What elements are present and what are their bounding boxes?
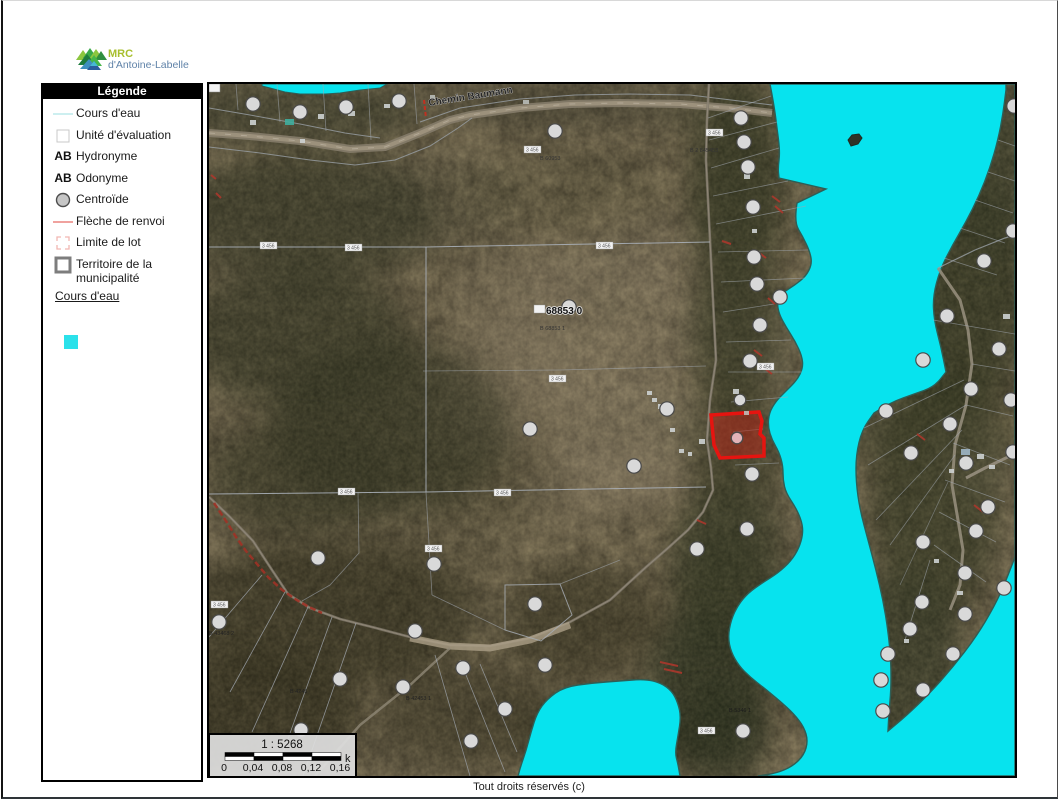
- svg-text:3 456: 3 456: [526, 148, 539, 154]
- svg-text:3 456: 3 456: [708, 131, 721, 137]
- svg-text:B 5346 1: B 5346 1: [729, 708, 751, 714]
- svg-text:B 2 845453: B 2 845453: [690, 148, 718, 154]
- svg-text:0: 0: [221, 762, 227, 774]
- svg-text:0,12: 0,12: [301, 762, 322, 774]
- svg-text:0,04: 0,04: [243, 762, 264, 774]
- svg-text:3 456: 3 456: [700, 729, 713, 735]
- svg-text:d'Antoine-Labelle: d'Antoine-Labelle: [108, 59, 189, 71]
- svg-text:0,08: 0,08: [272, 762, 293, 774]
- svg-text:B 68853 1: B 68853 1: [540, 326, 565, 332]
- svg-text:3 456: 3 456: [759, 365, 772, 371]
- svg-text:3 456: 3 456: [262, 244, 275, 250]
- svg-text:3 456: 3 456: [340, 490, 353, 496]
- svg-text:B 42453 1: B 42453 1: [406, 696, 431, 702]
- svg-text:0,16: 0,16: [330, 762, 351, 774]
- svg-text:3 456: 3 456: [213, 603, 226, 609]
- svg-text:B 4245: B 4245: [290, 689, 307, 695]
- svg-text:3 456: 3 456: [598, 244, 611, 250]
- svg-text:3 456: 3 456: [551, 377, 564, 383]
- svg-text:3 456: 3 456: [496, 491, 509, 497]
- svg-text:B 43468 2: B 43468 2: [209, 631, 234, 637]
- svg-text:B 60953: B 60953: [540, 156, 561, 162]
- svg-text:68853 0: 68853 0: [546, 306, 583, 317]
- svg-text:3 456: 3 456: [427, 547, 440, 553]
- svg-text:3 456: 3 456: [347, 246, 360, 252]
- svg-text:1 : 5268: 1 : 5268: [261, 739, 303, 751]
